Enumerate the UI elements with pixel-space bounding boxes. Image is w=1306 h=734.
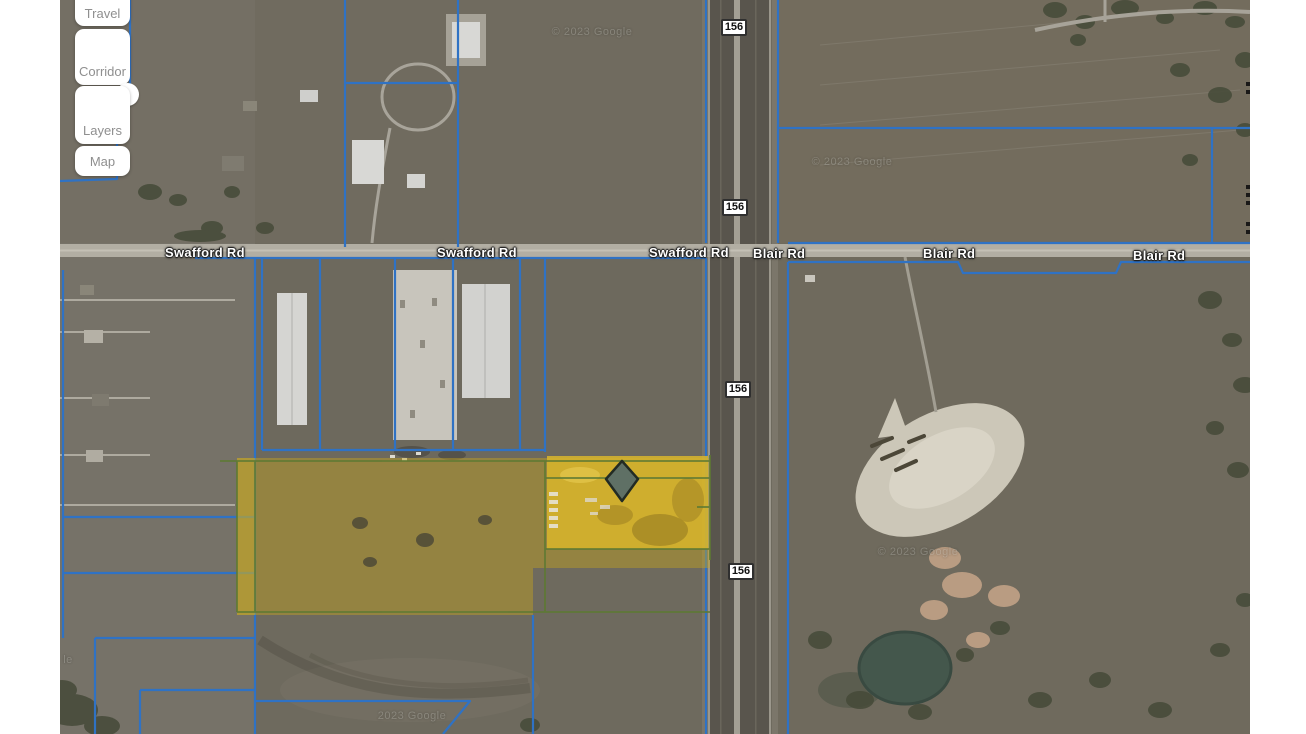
road-label-blair-3: Blair Rd [1133,248,1185,263]
road-label-swafford-3: Swafford Rd [649,245,729,260]
google-watermark-fragment: le [63,654,73,666]
map-canvas[interactable] [60,0,1250,734]
layers-button-label: Layers [83,123,122,138]
terrain-layer [60,0,1250,734]
map-graphics [60,0,1250,734]
road-label-blair-2: Blair Rd [923,246,975,261]
layers-button[interactable]: Layers [75,86,130,144]
highway-156-shield-2: 156 [722,199,748,216]
highway-156-shield-1: 156 [721,19,747,36]
road-label-blair-1: Blair Rd [753,246,805,261]
map-button-label: Map [90,154,115,169]
google-watermark-1: © 2023 Google [552,26,633,38]
corridor-button-label: Corridor [79,64,126,79]
google-watermark-2: © 2023 Google [812,156,893,168]
google-watermark-4: 2023 Google [378,710,447,722]
travel-button[interactable]: Travel [75,0,130,26]
road-label-swafford-2: Swafford Rd [437,245,517,260]
google-watermark-3: © 2023 Google [878,546,959,558]
travel-button-label: Travel [85,6,121,21]
highway-156-shield-4: 156 [728,563,754,580]
highway-156-shield-3: 156 [725,381,751,398]
map-app-window: Swafford Rd Swafford Rd Swafford Rd Blai… [0,0,1306,734]
map-button[interactable]: Map [75,146,130,176]
corridor-button[interactable]: Corridor [75,29,130,85]
road-label-swafford-1: Swafford Rd [165,245,245,260]
